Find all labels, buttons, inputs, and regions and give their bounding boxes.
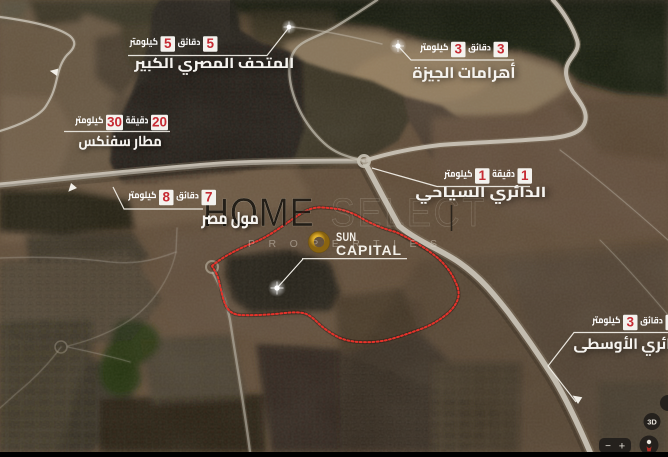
svg-text:5: 5: [206, 36, 214, 51]
svg-text:HOME: HOME: [203, 191, 315, 235]
svg-text:1: 1: [521, 168, 529, 183]
svg-text:1: 1: [478, 168, 486, 183]
svg-text:3: 3: [454, 42, 462, 57]
svg-text:8: 8: [162, 190, 170, 205]
svg-text:30: 30: [107, 115, 122, 130]
svg-text:20: 20: [152, 115, 167, 130]
svg-text:−: −: [605, 441, 611, 452]
svg-text:CAPITAL: CAPITAL: [336, 242, 402, 258]
svg-text:+: +: [619, 441, 625, 453]
svg-text:7: 7: [205, 190, 213, 205]
svg-text:3D: 3D: [647, 418, 657, 427]
svg-text:3: 3: [626, 315, 634, 330]
svg-text:3: 3: [497, 42, 505, 57]
svg-text:5: 5: [164, 36, 172, 51]
